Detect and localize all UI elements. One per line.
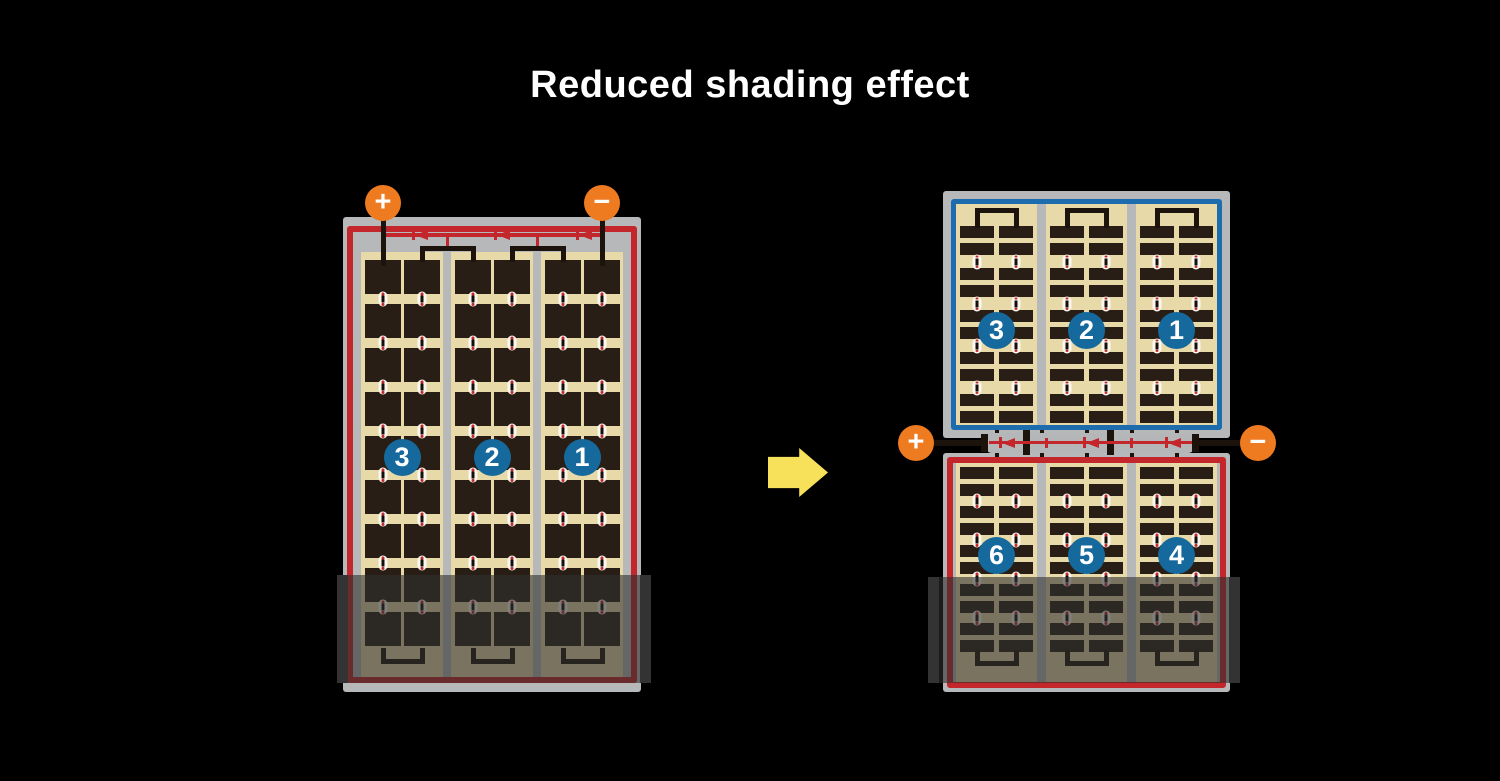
cell-connector-dot	[559, 292, 568, 307]
cell-connector-dot	[469, 380, 478, 395]
cell-connector-dot	[559, 468, 568, 483]
section-number: 3	[394, 442, 409, 473]
cell-connector-dot	[598, 556, 607, 571]
cell-connector-dot	[1102, 380, 1111, 395]
cell-connector-dot	[508, 336, 517, 351]
section-number-badge: 3	[978, 312, 1015, 349]
minus-icon: −	[594, 188, 611, 217]
string-top-connector	[975, 208, 1019, 228]
section-number-badge: 1	[1158, 312, 1195, 349]
cell-connector-dot	[469, 336, 478, 351]
plus-icon: +	[375, 188, 392, 217]
left-negative-terminal: −	[584, 185, 620, 221]
section-number-badge: 6	[978, 537, 1015, 574]
section-number: 3	[989, 315, 1004, 346]
cell-connector-dot	[973, 494, 982, 509]
section-number: 1	[1169, 315, 1184, 346]
cell-connector-dot	[379, 468, 388, 483]
cell-connector-dot	[973, 380, 982, 395]
bypass-diode-icon	[1083, 437, 1100, 448]
section-number: 6	[989, 540, 1004, 571]
cell-connector-dot	[418, 468, 427, 483]
left-positive-terminal: +	[365, 185, 401, 221]
cell-connector-dot	[559, 556, 568, 571]
bypass-diode-icon	[494, 229, 511, 240]
minus-icon: −	[1250, 428, 1267, 457]
left-shading-band	[337, 575, 651, 683]
cell-connector-dot	[1102, 338, 1111, 353]
cell-connector-dot	[1012, 254, 1021, 269]
cell-connector-dot	[1012, 533, 1021, 548]
diagram-title: Reduced shading effect	[0, 64, 1500, 107]
cell-connector-dot	[379, 336, 388, 351]
right-negative-terminal: −	[1240, 425, 1276, 461]
bypass-diode-icon	[1165, 437, 1182, 448]
cell-connector-dot	[1063, 380, 1072, 395]
section-number-badge: 3	[384, 439, 421, 476]
transform-arrow-icon	[768, 448, 828, 497]
cell-connector-dot	[973, 254, 982, 269]
cell-connector-dot	[379, 512, 388, 527]
cell-connector-dot	[559, 380, 568, 395]
string-top-connector	[510, 246, 566, 262]
cell-connector-dot	[1153, 494, 1162, 509]
cell-connector-dot	[1192, 254, 1201, 269]
section-number-badge: 5	[1068, 537, 1105, 574]
cell-connector-dot	[379, 556, 388, 571]
bus-tick	[1045, 438, 1048, 448]
cell-connector-dot	[1102, 533, 1111, 548]
cell-connector-dot	[598, 512, 607, 527]
cell-connector-dot	[1012, 296, 1021, 311]
cell-connector-dot	[379, 292, 388, 307]
cell-connector-dot	[469, 556, 478, 571]
section-number: 2	[484, 442, 499, 473]
cell-connector-dot	[418, 336, 427, 351]
right-positive-terminal: +	[898, 425, 934, 461]
cell-connector-dot	[469, 292, 478, 307]
cell-connector-dot	[1192, 380, 1201, 395]
cell-connector-dot	[508, 468, 517, 483]
cell-connector-dot	[973, 296, 982, 311]
cell-connector-dot	[559, 336, 568, 351]
cell-connector-dot	[598, 292, 607, 307]
cell-connector-dot	[1102, 494, 1111, 509]
section-number: 1	[574, 442, 589, 473]
cell-connector-dot	[508, 292, 517, 307]
cell-connector-dot	[508, 556, 517, 571]
cell-connector-dot	[469, 468, 478, 483]
cell-connector-dot	[1192, 296, 1201, 311]
cell-connector-dot	[418, 292, 427, 307]
section-number: 4	[1169, 540, 1184, 571]
cell-connector-dot	[379, 424, 388, 439]
string-top-connector	[1065, 208, 1109, 228]
section-number: 5	[1079, 540, 1094, 571]
cell-connector-dot	[379, 380, 388, 395]
cell-connector-dot	[418, 424, 427, 439]
bypass-diode-icon	[999, 437, 1016, 448]
section-number-badge: 2	[474, 439, 511, 476]
cell-connector-dot	[1192, 533, 1201, 548]
negative-lead-wire	[1192, 440, 1246, 446]
cell-connector-dot	[598, 380, 607, 395]
cell-connector-dot	[418, 380, 427, 395]
cell-connector-dot	[559, 424, 568, 439]
cell-connector-dot	[1153, 296, 1162, 311]
cell-connector-dot	[1012, 338, 1021, 353]
cell-connector-dot	[1063, 254, 1072, 269]
cell-connector-dot	[418, 556, 427, 571]
cell-connector-dot	[559, 512, 568, 527]
cell-connector-dot	[1153, 380, 1162, 395]
cell-connector-dot	[469, 512, 478, 527]
cell-connector-dot	[598, 468, 607, 483]
cell-connector-dot	[598, 336, 607, 351]
cell-connector-dot	[1063, 296, 1072, 311]
section-number-badge: 2	[1068, 312, 1105, 349]
cell-connector-dot	[1153, 254, 1162, 269]
cell-connector-dot	[1012, 380, 1021, 395]
cell-connector-dot	[1192, 338, 1201, 353]
diagram-canvas: Reduced shading effect +	[0, 0, 1500, 781]
bypass-diode-icon	[576, 229, 593, 240]
positive-lead-wire	[381, 218, 386, 266]
cell-connector-dot	[508, 424, 517, 439]
cell-connector-dot	[508, 380, 517, 395]
plus-icon: +	[908, 428, 925, 457]
negative-lead-wire	[600, 218, 605, 266]
cell-connector-dot	[508, 512, 517, 527]
section-number: 2	[1079, 315, 1094, 346]
cell-connector-dot	[1012, 494, 1021, 509]
cell-connector-dot	[598, 424, 607, 439]
section-number-badge: 1	[564, 439, 601, 476]
positive-lead-wire	[930, 440, 988, 446]
string-top-connector	[1155, 208, 1199, 228]
bus-tick	[1130, 438, 1133, 448]
section-number-badge: 4	[1158, 537, 1195, 574]
right-shading-band	[928, 577, 1240, 683]
cell-connector-dot	[1192, 494, 1201, 509]
cell-connector-dot	[1063, 494, 1072, 509]
cell-connector-dot	[1102, 296, 1111, 311]
bypass-diode-icon	[412, 229, 429, 240]
string-top-connector	[420, 246, 476, 262]
cell-connector-dot	[418, 512, 427, 527]
cell-connector-dot	[1102, 254, 1111, 269]
cell-connector-dot	[469, 424, 478, 439]
